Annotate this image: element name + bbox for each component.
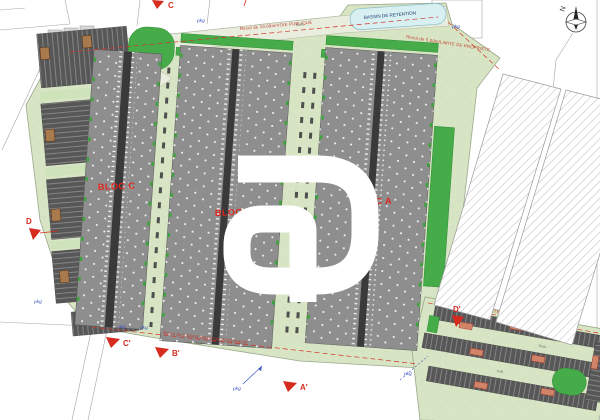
section-marker-d: D [26, 217, 32, 226]
pkg-label: pkg [232, 386, 241, 392]
section-marker-b-prime: B' [172, 349, 180, 358]
bottom-dim: 5.00 [196, 341, 203, 346]
bloc-c-label: BLOC C [98, 181, 136, 192]
site-plan-canvas: BASSIN DE RETENTION [0, 0, 600, 420]
section-marker-d-prime: D' [453, 305, 461, 314]
top-dim: 10.00 [296, 22, 305, 27]
bloc-b-building [160, 45, 292, 348]
section-marker-a-prime: A' [300, 383, 308, 392]
pkg-label: pkg [33, 299, 42, 305]
pkg-label: pkg [139, 325, 148, 331]
section-marker-c-prime: C' [123, 339, 131, 348]
pkg-label: pkg [451, 24, 460, 30]
section-marker-c: C [168, 1, 174, 10]
site-plan-drawing: BASSIN DE RETENTION [0, 0, 600, 420]
pkg-label: pkg [117, 324, 126, 330]
pkg-label: pkg [196, 18, 205, 24]
